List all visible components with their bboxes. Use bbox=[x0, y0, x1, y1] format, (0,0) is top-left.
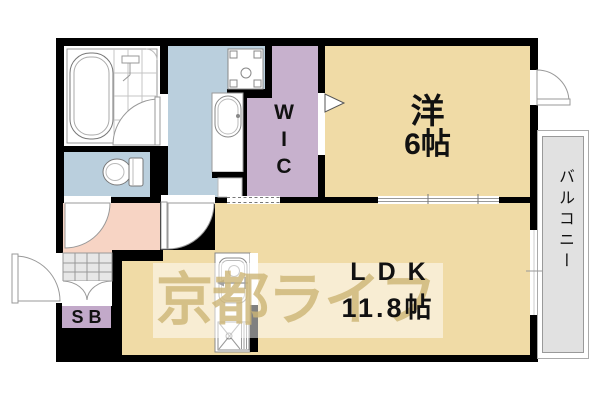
toilet-door-opening bbox=[64, 196, 111, 204]
wic-label-char: I bbox=[269, 126, 299, 153]
wic-label-char: C bbox=[269, 153, 299, 180]
ldk-label: LDK bbox=[303, 258, 473, 287]
western-room-door-opening bbox=[318, 93, 325, 155]
entrance-door-swing-icon bbox=[12, 254, 60, 303]
entrance-door-opening bbox=[56, 253, 64, 303]
wic-label-char: W bbox=[269, 99, 299, 126]
room-washroom-lower bbox=[168, 92, 242, 197]
wic-label: W I C bbox=[269, 99, 299, 180]
room-washroom-upper bbox=[168, 46, 265, 92]
bathroom-door-opening bbox=[160, 94, 168, 146]
balcony-door-opening bbox=[530, 70, 538, 105]
room-wic-upper bbox=[272, 46, 318, 97]
room-toilet bbox=[64, 152, 150, 197]
room-hall bbox=[63, 203, 112, 253]
room-bathroom bbox=[64, 46, 160, 146]
balcony-label: バルコニー bbox=[552, 168, 576, 273]
balcony-door-swing-icon bbox=[537, 70, 570, 105]
western-room-size-label: 6帖 bbox=[325, 119, 530, 163]
ldk-size-label: 11.8帖 bbox=[303, 286, 473, 325]
shoe-box-label: SB bbox=[66, 307, 106, 328]
hall-door-opening bbox=[161, 195, 215, 204]
shoe-box: SB bbox=[62, 306, 111, 328]
room-hall-2 bbox=[112, 203, 160, 250]
floor-plan: 京都ライフ 洋 6帖 LDK 11.8帖 W I C バルコニー SB bbox=[0, 0, 600, 400]
